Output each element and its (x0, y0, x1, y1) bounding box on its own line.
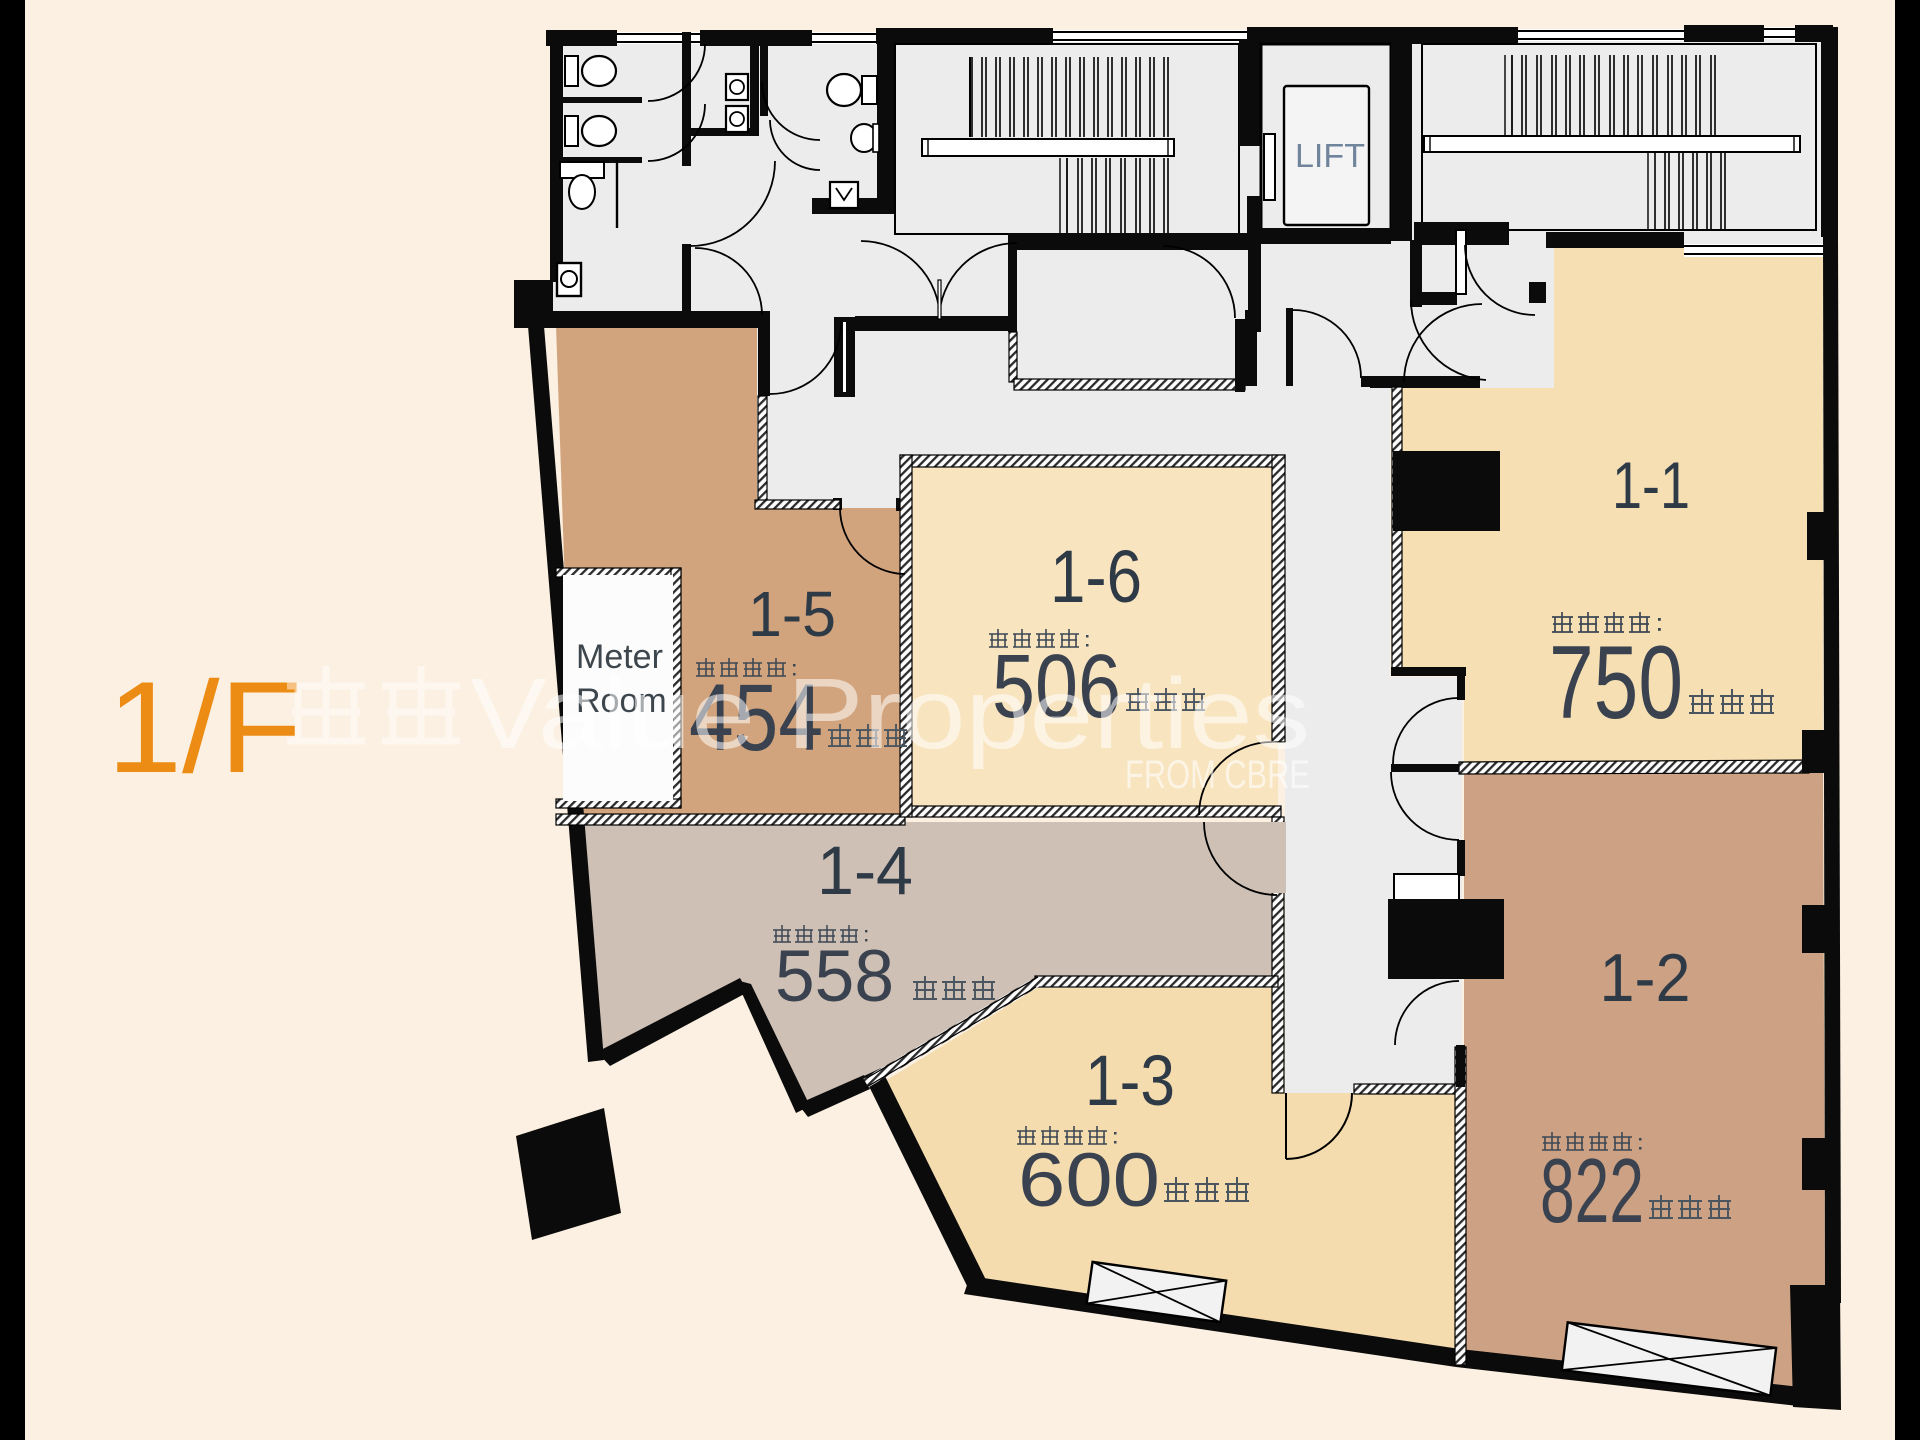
svg-text:1-2: 1-2 (1600, 940, 1691, 1016)
svg-text:1-3: 1-3 (1085, 1042, 1175, 1121)
svg-text:1-6: 1-6 (1050, 535, 1142, 618)
svg-text:LIFT: LIFT (1295, 137, 1365, 174)
svg-text:1-1: 1-1 (1612, 448, 1690, 522)
svg-text:822: 822 (1540, 1141, 1644, 1242)
svg-text:750: 750 (1549, 625, 1683, 741)
svg-text:1/F: 1/F (107, 654, 302, 800)
svg-text:1-5: 1-5 (748, 578, 836, 650)
svg-text:1-4: 1-4 (817, 832, 913, 909)
svg-text:558: 558 (775, 936, 894, 1017)
svg-text:FROM CBRE: FROM CBRE (1125, 753, 1310, 797)
svg-text:600: 600 (1018, 1138, 1160, 1223)
